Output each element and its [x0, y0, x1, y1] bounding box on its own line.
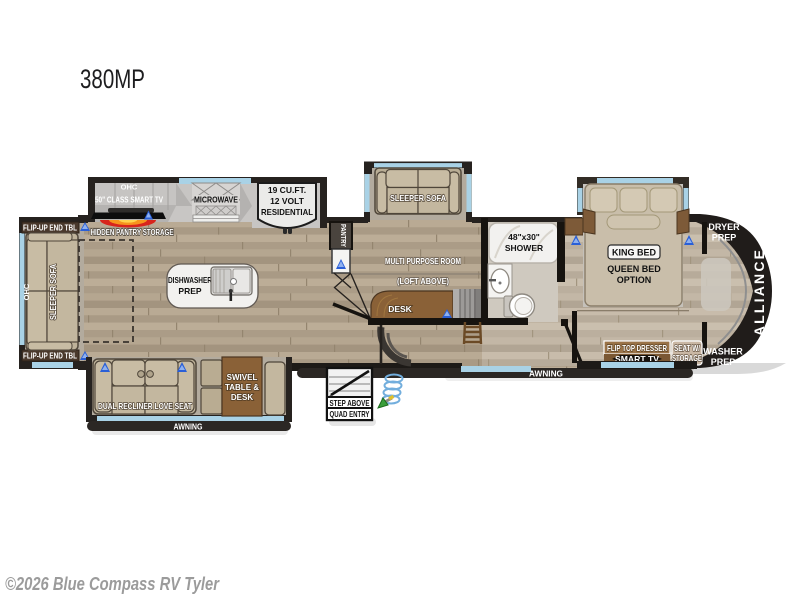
svg-text:SLEEPER SOFA: SLEEPER SOFA	[390, 193, 446, 203]
svg-text:(LOFT ABOVE): (LOFT ABOVE)	[397, 276, 449, 286]
svg-text:DISHWASHER: DISHWASHER	[168, 275, 212, 285]
svg-text:PREP: PREP	[178, 286, 201, 296]
svg-text:RESIDENTIAL: RESIDENTIAL	[261, 207, 313, 217]
svg-text:48"x30": 48"x30"	[508, 232, 540, 242]
svg-text:SLEEPER SOFA: SLEEPER SOFA	[48, 264, 58, 320]
svg-text:AWNING: AWNING	[174, 422, 203, 432]
svg-text:TABLE &: TABLE &	[225, 383, 259, 392]
svg-text:DESK: DESK	[388, 304, 412, 314]
svg-text:SEAT W/: SEAT W/	[674, 343, 700, 353]
svg-text:©2026 Blue Compass RV Tyler: ©2026 Blue Compass RV Tyler	[5, 573, 220, 594]
svg-text:PANTRY: PANTRY	[339, 224, 348, 247]
svg-text:DESK: DESK	[231, 393, 253, 402]
svg-text:50" CLASS SMART TV: 50" CLASS SMART TV	[95, 196, 164, 205]
svg-text:380MP: 380MP	[80, 64, 145, 94]
svg-text:HIDDEN PANTRY STORAGE: HIDDEN PANTRY STORAGE	[91, 228, 175, 237]
svg-text:SWIVEL: SWIVEL	[227, 373, 258, 382]
svg-text:DRYER: DRYER	[708, 222, 740, 232]
svg-text:KING BED: KING BED	[612, 248, 657, 258]
svg-text:19 CU.FT.: 19 CU.FT.	[268, 185, 306, 195]
svg-text:SHOWER: SHOWER	[505, 243, 543, 253]
svg-text:QUEEN BED: QUEEN BED	[607, 264, 661, 274]
svg-text:PREP: PREP	[712, 233, 737, 243]
svg-text:12 VOLT: 12 VOLT	[270, 196, 305, 206]
svg-text:FLIP TOP DRESSER: FLIP TOP DRESSER	[607, 343, 667, 353]
svg-text:FLIP-UP END TBL: FLIP-UP END TBL	[23, 351, 77, 361]
svg-text:DUAL RECLINER LOVE SEAT: DUAL RECLINER LOVE SEAT	[98, 401, 193, 411]
svg-text:ALLIANCE: ALLIANCE	[751, 248, 767, 336]
svg-text:OHC: OHC	[121, 183, 138, 192]
svg-text:FLIP-UP END TBL: FLIP-UP END TBL	[23, 223, 77, 233]
svg-text:MULTI PURPOSE ROOM: MULTI PURPOSE ROOM	[385, 256, 461, 266]
svg-text:PREP: PREP	[711, 357, 736, 367]
svg-text:QUAD ENTRY: QUAD ENTRY	[330, 409, 370, 419]
svg-text:MICROWAVE: MICROWAVE	[194, 195, 238, 205]
svg-text:AWNING: AWNING	[529, 369, 563, 379]
svg-text:STEP ABOVE: STEP ABOVE	[330, 398, 370, 408]
svg-text:WASHER: WASHER	[703, 347, 743, 357]
svg-text:OHC: OHC	[22, 283, 31, 300]
svg-text:OPTION: OPTION	[617, 275, 652, 285]
